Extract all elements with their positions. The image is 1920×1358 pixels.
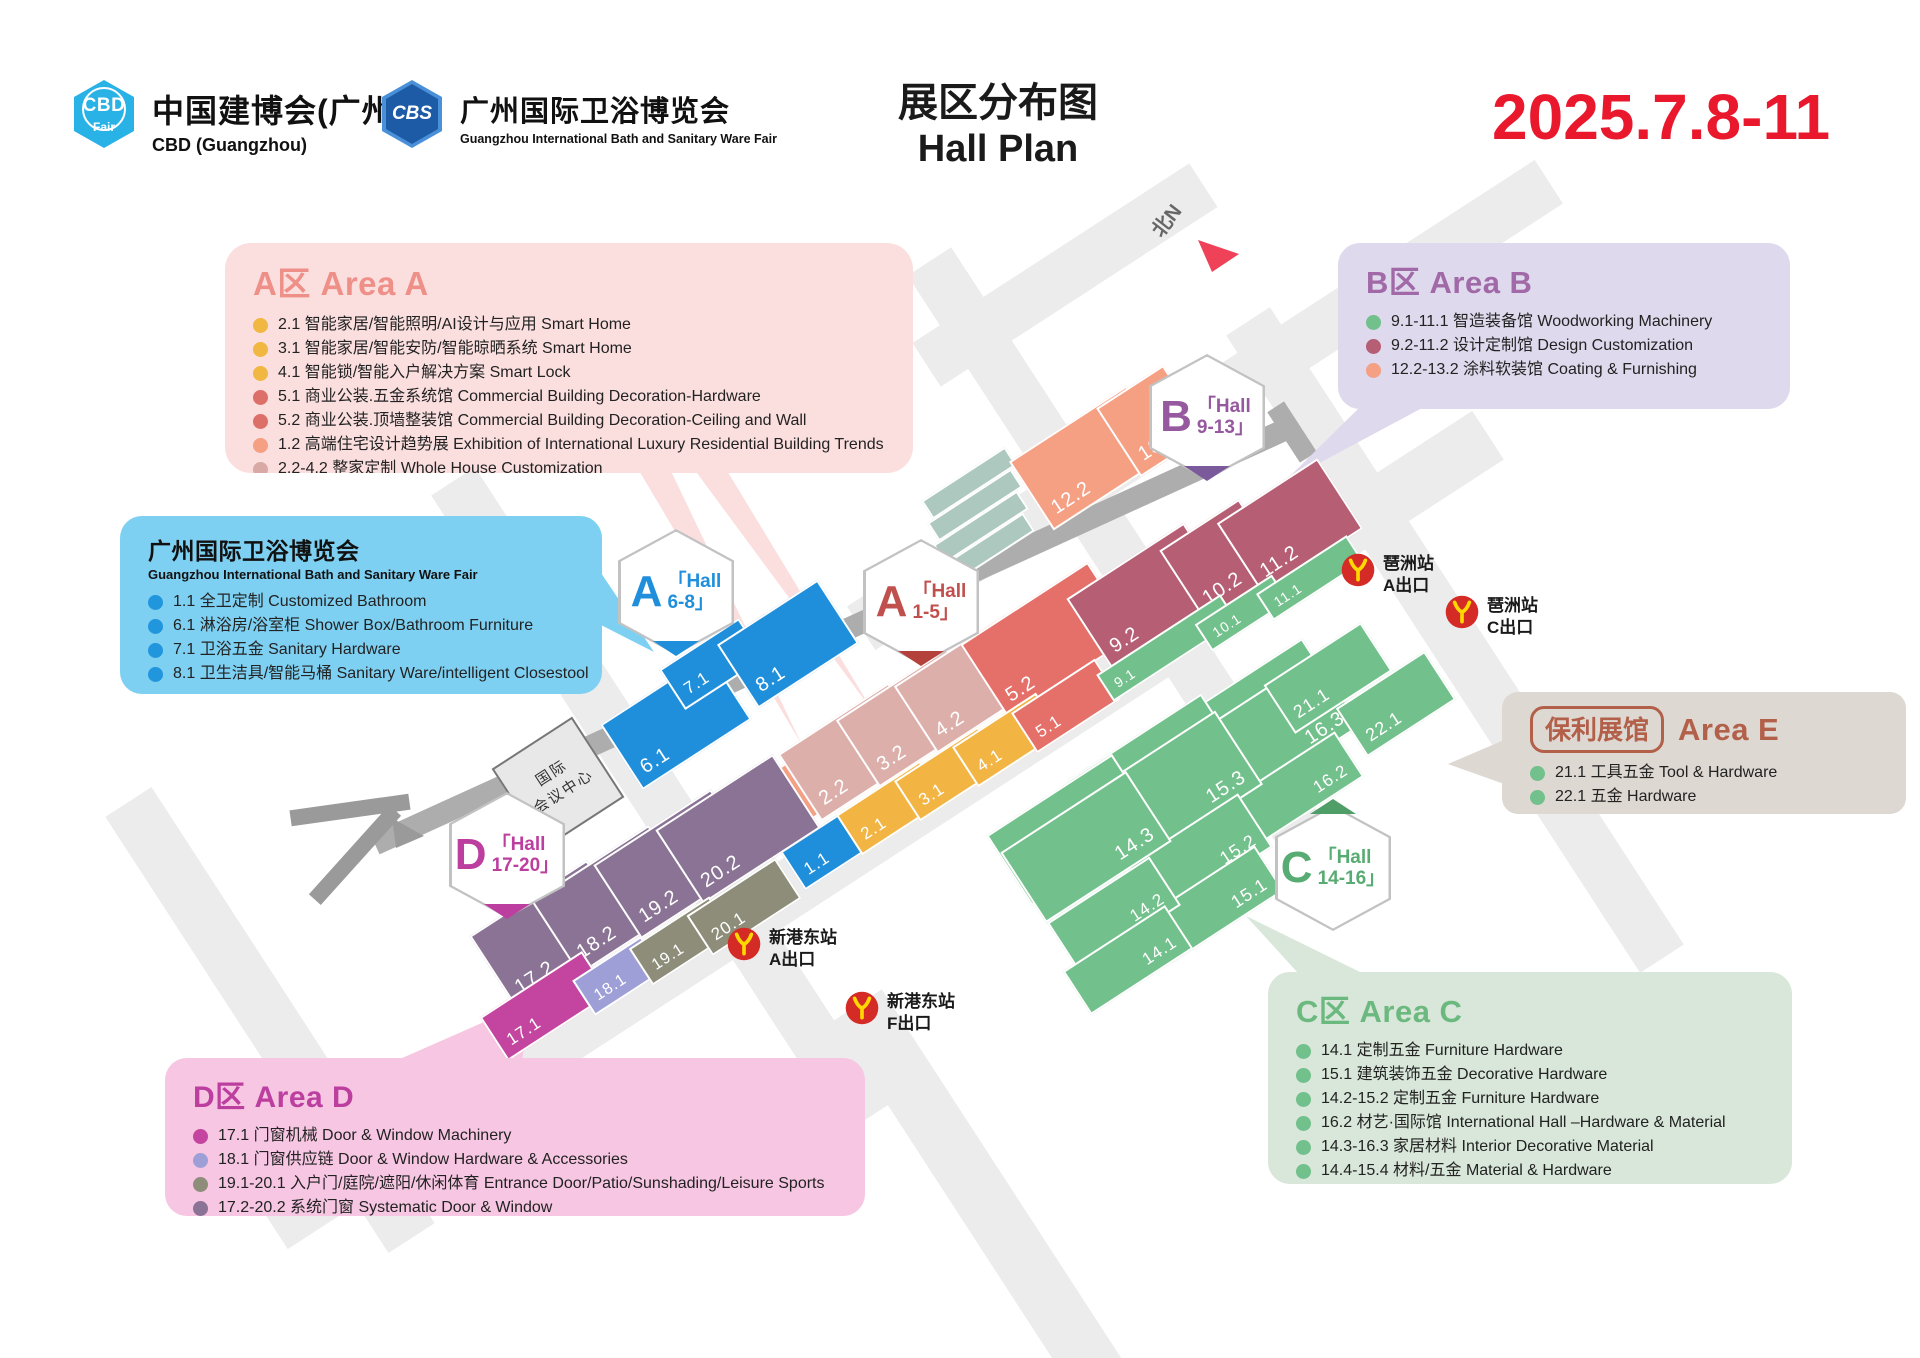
legend-area-a: A区 Area A 2.1 智能家居/智能照明/AI设计与应用 Smart Ho… (225, 243, 913, 473)
legend-dot-icon (1296, 1068, 1311, 1083)
legend-dot-icon (193, 1201, 208, 1216)
legend-dot-icon (148, 619, 163, 634)
metro-exit-name: F出口 (887, 1013, 955, 1035)
legend-item: 5.2 商业公装.顶墙整装馆 Commercial Building Decor… (253, 409, 913, 433)
legend-dot-icon (1530, 766, 1545, 781)
legend-dot-icon (1296, 1092, 1311, 1107)
metro-exit-name: A出口 (1383, 575, 1434, 597)
legend-item-label: 14.2-15.2 定制五金 Furniture Hardware (1321, 1087, 1599, 1111)
cbd-brand: 中国建博会(广州) CBD (Guangzhou) (152, 86, 406, 156)
metro-station-name: 新港东站 (769, 927, 837, 949)
metro-station-新港东站-F出口: 新港东站F出口 (845, 991, 955, 1035)
legend-item-label: 7.1 卫浴五金 Sanitary Hardware (173, 638, 401, 662)
cbd-fair-title: 中国建博会(广州) (152, 86, 406, 132)
legend-dot-icon (1296, 1164, 1311, 1179)
legend-item-label: 5.2 商业公装.顶墙整装馆 Commercial Building Decor… (278, 409, 806, 433)
cbs-hexagon-logo-icon: CBS (382, 80, 442, 148)
bath-legend: 1.1 全卫定制 Customized Bathroom6.1 淋浴房/浴室柜 … (148, 590, 602, 686)
metro-station-name: 琶洲站 (1383, 553, 1434, 575)
cbd-logo-sub: Fair (93, 120, 115, 134)
legend-item: 19.1-20.1 入户门/庭院/遮阳/休闲体育 Entrance Door/P… (193, 1172, 865, 1196)
legend-dot-icon (148, 595, 163, 610)
legend-dot-icon (193, 1153, 208, 1168)
legend-item-label: 4.1 智能锁/智能入户解决方案 Smart Lock (278, 361, 571, 385)
legend-item: 8.1 卫生洁具/智能马桶 Sanitary Ware/intelligent … (148, 662, 602, 686)
legend-item-label: 17.1 门窗机械 Door & Window Machinery (218, 1124, 511, 1148)
legend-area-b: B区 Area B 9.1-11.1 智造装备馆 Woodworking Mac… (1338, 243, 1790, 409)
area-d-legend: 17.1 门窗机械 Door & Window Machinery18.1 门窗… (193, 1124, 865, 1216)
metro-logo-icon (1445, 595, 1479, 629)
legend-item: 17.1 门窗机械 Door & Window Machinery (193, 1124, 865, 1148)
area-c-legend: 14.1 定制五金 Furniture Hardware15.1 建筑装饰五金 … (1296, 1039, 1792, 1183)
metro-station-name: 新港东站 (887, 991, 955, 1013)
cbd-fair-subtitle: CBD (Guangzhou) (152, 135, 406, 156)
area-d-title: D区 Area D (193, 1072, 865, 1116)
legend-dot-icon (193, 1177, 208, 1192)
legend-item-label: 18.1 门窗供应链 Door & Window Hardware & Acce… (218, 1148, 628, 1172)
legend-item-label: 16.2 材艺·国际馆 International Hall –Hardware… (1321, 1111, 1726, 1135)
metro-station-label: 新港东站A出口 (769, 927, 837, 971)
legend-item-label: 3.1 智能家居/智能安防/智能晾晒系统 Smart Home (278, 337, 632, 361)
legend-item: 9.2-11.2 设计定制馆 Design Customization (1366, 334, 1790, 358)
legend-item-label: 17.2-20.2 系统门窗 Systematic Door & Window (218, 1196, 552, 1216)
area-c-title: C区 Area C (1296, 986, 1792, 1031)
legend-area-c: C区 Area C 14.1 定制五金 Furniture Hardware15… (1268, 972, 1792, 1184)
legend-item: 1.1 全卫定制 Customized Bathroom (148, 590, 602, 614)
legend-dot-icon (1366, 315, 1381, 330)
legend-dot-icon (193, 1129, 208, 1144)
legend-item-label: 1.2 高端住宅设计趋势展 Exhibition of Internationa… (278, 433, 884, 457)
legend-item: 2.1 智能家居/智能照明/AI设计与应用 Smart Home (253, 313, 913, 337)
legend-item-label: 14.3-16.3 家居材料 Interior Decorative Mater… (1321, 1135, 1654, 1159)
metro-station-琶洲站-A出口: 琶洲站A出口 (1341, 553, 1434, 597)
legend-dot-icon (148, 643, 163, 658)
cbs-brand: 广州国际卫浴博览会 Guangzhou International Bath a… (460, 88, 777, 146)
legend-item: 15.1 建筑装饰五金 Decorative Hardware (1296, 1063, 1792, 1087)
bath-fair-title: 广州国际卫浴博览会 (460, 88, 777, 130)
legend-item-label: 14.4-15.4 材料/五金 Material & Hardware (1321, 1159, 1612, 1183)
cbs-logo: CBS (382, 80, 442, 148)
legend-dot-icon (1296, 1140, 1311, 1155)
legend-item-label: 15.1 建筑装饰五金 Decorative Hardware (1321, 1063, 1607, 1087)
legend-dot-icon (1296, 1116, 1311, 1131)
legend-dot-icon (253, 414, 268, 429)
metro-station-琶洲站-C出口: 琶洲站C出口 (1445, 595, 1538, 639)
area-b-title: B区 Area B (1366, 257, 1790, 302)
legend-item: 14.2-15.2 定制五金 Furniture Hardware (1296, 1087, 1792, 1111)
legend-item-label: 2.1 智能家居/智能照明/AI设计与应用 Smart Home (278, 313, 631, 337)
cbd-hexagon-logo-icon: CBD Fair (74, 80, 134, 148)
metro-station-label: 新港东站F出口 (887, 991, 955, 1035)
legend-item-label: 2.2-4.2 整家定制 Whole House Customization (278, 457, 603, 473)
legend-item: 14.3-16.3 家居材料 Interior Decorative Mater… (1296, 1135, 1792, 1159)
legend-dot-icon (253, 318, 268, 333)
legend-item-label: 21.1 工具五金 Tool & Hardware (1555, 761, 1777, 785)
legend-item: 6.1 淋浴房/浴室柜 Shower Box/Bathroom Furnitur… (148, 614, 602, 638)
bath-box-subtitle: Guangzhou International Bath and Sanitar… (148, 567, 602, 582)
area-e-title: Area E (1678, 712, 1779, 748)
legend-item: 2.2-4.2 整家定制 Whole House Customization (253, 457, 913, 473)
metro-exit-name: C出口 (1487, 617, 1538, 639)
legend-bath-fair: 广州国际卫浴博览会 Guangzhou International Bath a… (120, 516, 602, 694)
area-e-venue-badge: 保利展馆 (1530, 706, 1664, 753)
legend-item: 7.1 卫浴五金 Sanitary Hardware (148, 638, 602, 662)
legend-dot-icon (1366, 339, 1381, 354)
legend-item-label: 9.2-11.2 设计定制馆 Design Customization (1391, 334, 1693, 358)
legend-item: 9.1-11.1 智造装备馆 Woodworking Machinery (1366, 310, 1790, 334)
metro-logo-icon (1341, 553, 1375, 587)
legend-item: 21.1 工具五金 Tool & Hardware (1530, 761, 1906, 785)
legend-dot-icon (253, 438, 268, 453)
metro-logo-icon (845, 991, 879, 1025)
area-e-legend: 21.1 工具五金 Tool & Hardware22.1 五金 Hardwar… (1530, 761, 1906, 809)
legend-item-label: 6.1 淋浴房/浴室柜 Shower Box/Bathroom Furnitur… (173, 614, 533, 638)
metro-station-新港东站-A出口: 新港东站A出口 (727, 927, 837, 971)
hall-plan-page: 国际 会议中心 北N 1.21.12.23.24.25.22.13.14.15.… (0, 0, 1920, 1358)
legend-item: 12.2-13.2 涂料软装馆 Coating & Furnishing (1366, 358, 1790, 382)
legend-item: 14.1 定制五金 Furniture Hardware (1296, 1039, 1792, 1063)
bath-fair-subtitle: Guangzhou International Bath and Sanitar… (460, 132, 777, 146)
legend-item-label: 19.1-20.1 入户门/庭院/遮阳/休闲体育 Entrance Door/P… (218, 1172, 825, 1196)
legend-item: 4.1 智能锁/智能入户解决方案 Smart Lock (253, 361, 913, 385)
legend-item-label: 14.1 定制五金 Furniture Hardware (1321, 1039, 1563, 1063)
legend-dot-icon (253, 366, 268, 381)
legend-item-label: 9.1-11.1 智造装备馆 Woodworking Machinery (1391, 310, 1712, 334)
area-b-legend: 9.1-11.1 智造装备馆 Woodworking Machinery9.2-… (1366, 310, 1790, 382)
legend-item: 1.2 高端住宅设计趋势展 Exhibition of Internationa… (253, 433, 913, 457)
legend-item: 18.1 门窗供应链 Door & Window Hardware & Acce… (193, 1148, 865, 1172)
legend-dot-icon (1530, 790, 1545, 805)
legend-dot-icon (253, 342, 268, 357)
legend-dot-icon (148, 667, 163, 682)
legend-area-e: 保利展馆 Area E 21.1 工具五金 Tool & Hardware22.… (1502, 692, 1906, 814)
legend-item: 5.1 商业公装.五金系统馆 Commercial Building Decor… (253, 385, 913, 409)
legend-dot-icon (253, 462, 268, 474)
cbs-logo-abbr: CBS (392, 103, 432, 125)
area-a-legend: 2.1 智能家居/智能照明/AI设计与应用 Smart Home3.1 智能家居… (253, 313, 913, 473)
cbd-logo-abbr: CBD (83, 95, 126, 117)
legend-dot-icon (253, 390, 268, 405)
metro-station-name: 琶洲站 (1487, 595, 1538, 617)
legend-item: 14.4-15.4 材料/五金 Material & Hardware (1296, 1159, 1792, 1183)
legend-item-label: 22.1 五金 Hardware (1555, 785, 1696, 809)
legend-item-label: 12.2-13.2 涂料软装馆 Coating & Furnishing (1391, 358, 1697, 382)
legend-item: 16.2 材艺·国际馆 International Hall –Hardware… (1296, 1111, 1792, 1135)
legend-area-d: D区 Area D 17.1 门窗机械 Door & Window Machin… (165, 1058, 865, 1216)
legend-dot-icon (1296, 1044, 1311, 1059)
legend-item: 22.1 五金 Hardware (1530, 785, 1906, 809)
legend-item-label: 8.1 卫生洁具/智能马桶 Sanitary Ware/intelligent … (173, 662, 589, 686)
legend-dot-icon (1366, 363, 1381, 378)
bath-box-title: 广州国际卫浴博览会 (148, 532, 602, 566)
legend-item-label: 1.1 全卫定制 Customized Bathroom (173, 590, 426, 614)
metro-station-label: 琶洲站A出口 (1383, 553, 1434, 597)
legend-item-label: 5.1 商业公装.五金系统馆 Commercial Building Decor… (278, 385, 761, 409)
area-a-title: A区 Area A (253, 257, 913, 305)
cbd-logo: CBD Fair (74, 80, 134, 148)
legend-item: 3.1 智能家居/智能安防/智能晾晒系统 Smart Home (253, 337, 913, 361)
metro-exit-name: A出口 (769, 949, 837, 971)
metro-station-label: 琶洲站C出口 (1487, 595, 1538, 639)
metro-logo-icon (727, 927, 761, 961)
legend-item: 17.2-20.2 系统门窗 Systematic Door & Window (193, 1196, 865, 1216)
